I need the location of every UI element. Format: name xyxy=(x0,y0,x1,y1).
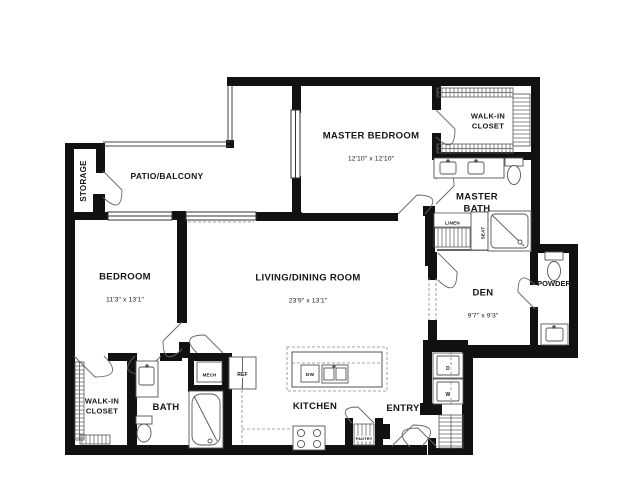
room-label-storage: STORAGE xyxy=(79,160,89,202)
fixture-label-washer: W xyxy=(445,392,452,398)
room-label-powder: POWDER xyxy=(537,279,571,288)
fixture-label-mech: MECH xyxy=(202,372,218,377)
room-label-entry: ENTRY xyxy=(386,403,419,415)
room-label-walk-in-closet: WALK-IN CLOSET xyxy=(85,397,119,416)
room-dims-living-dining: 23'9" x 13'1" xyxy=(255,297,360,305)
fixture-label-dryer: D xyxy=(445,366,451,372)
room-label-master-bedroom: MASTER BEDROOM xyxy=(323,130,420,142)
room-label-living-dining: LIVING/DINING ROOM xyxy=(255,272,360,284)
master-vanity xyxy=(434,158,504,178)
fixture-label-ref: REF xyxy=(236,372,249,378)
room-label-bath: BATH xyxy=(153,402,180,414)
fixture-label-pantry: PANTRY xyxy=(355,436,374,441)
room-label-master-bath: MASTER BATH xyxy=(456,191,498,215)
room-dims-master-bedroom: 12'10" x 12'10" xyxy=(323,155,420,163)
bath-toilet-icon xyxy=(136,416,152,442)
room-label-kitchen: KITCHEN xyxy=(293,401,337,413)
powder-sink xyxy=(541,324,568,345)
master-toilet-icon xyxy=(505,158,523,185)
bath-tub xyxy=(189,391,223,448)
room-label-den: DEN xyxy=(468,287,499,299)
room-label-bedroom: BEDROOM xyxy=(99,271,151,283)
stove-icon xyxy=(293,426,325,450)
fixture-label-dishwasher: DW xyxy=(305,374,315,379)
room-label-master-walk-in-closet: WALK-IN CLOSET xyxy=(471,112,505,131)
room-label-patio-balcony: PATIO/BALCONY xyxy=(131,171,204,182)
room-dims-den: 9'7" x 9'3" xyxy=(468,312,499,320)
balcony-railing xyxy=(103,85,232,146)
fixture-label-seat: SEAT xyxy=(480,226,485,241)
room-dims-bedroom: 11'3" x 13'1" xyxy=(99,296,151,304)
floor-plan: STORAGE PATIO/BALCONY MASTER BEDROOM 12'… xyxy=(0,0,640,480)
fixture-label-linen: LINEN xyxy=(444,220,461,225)
